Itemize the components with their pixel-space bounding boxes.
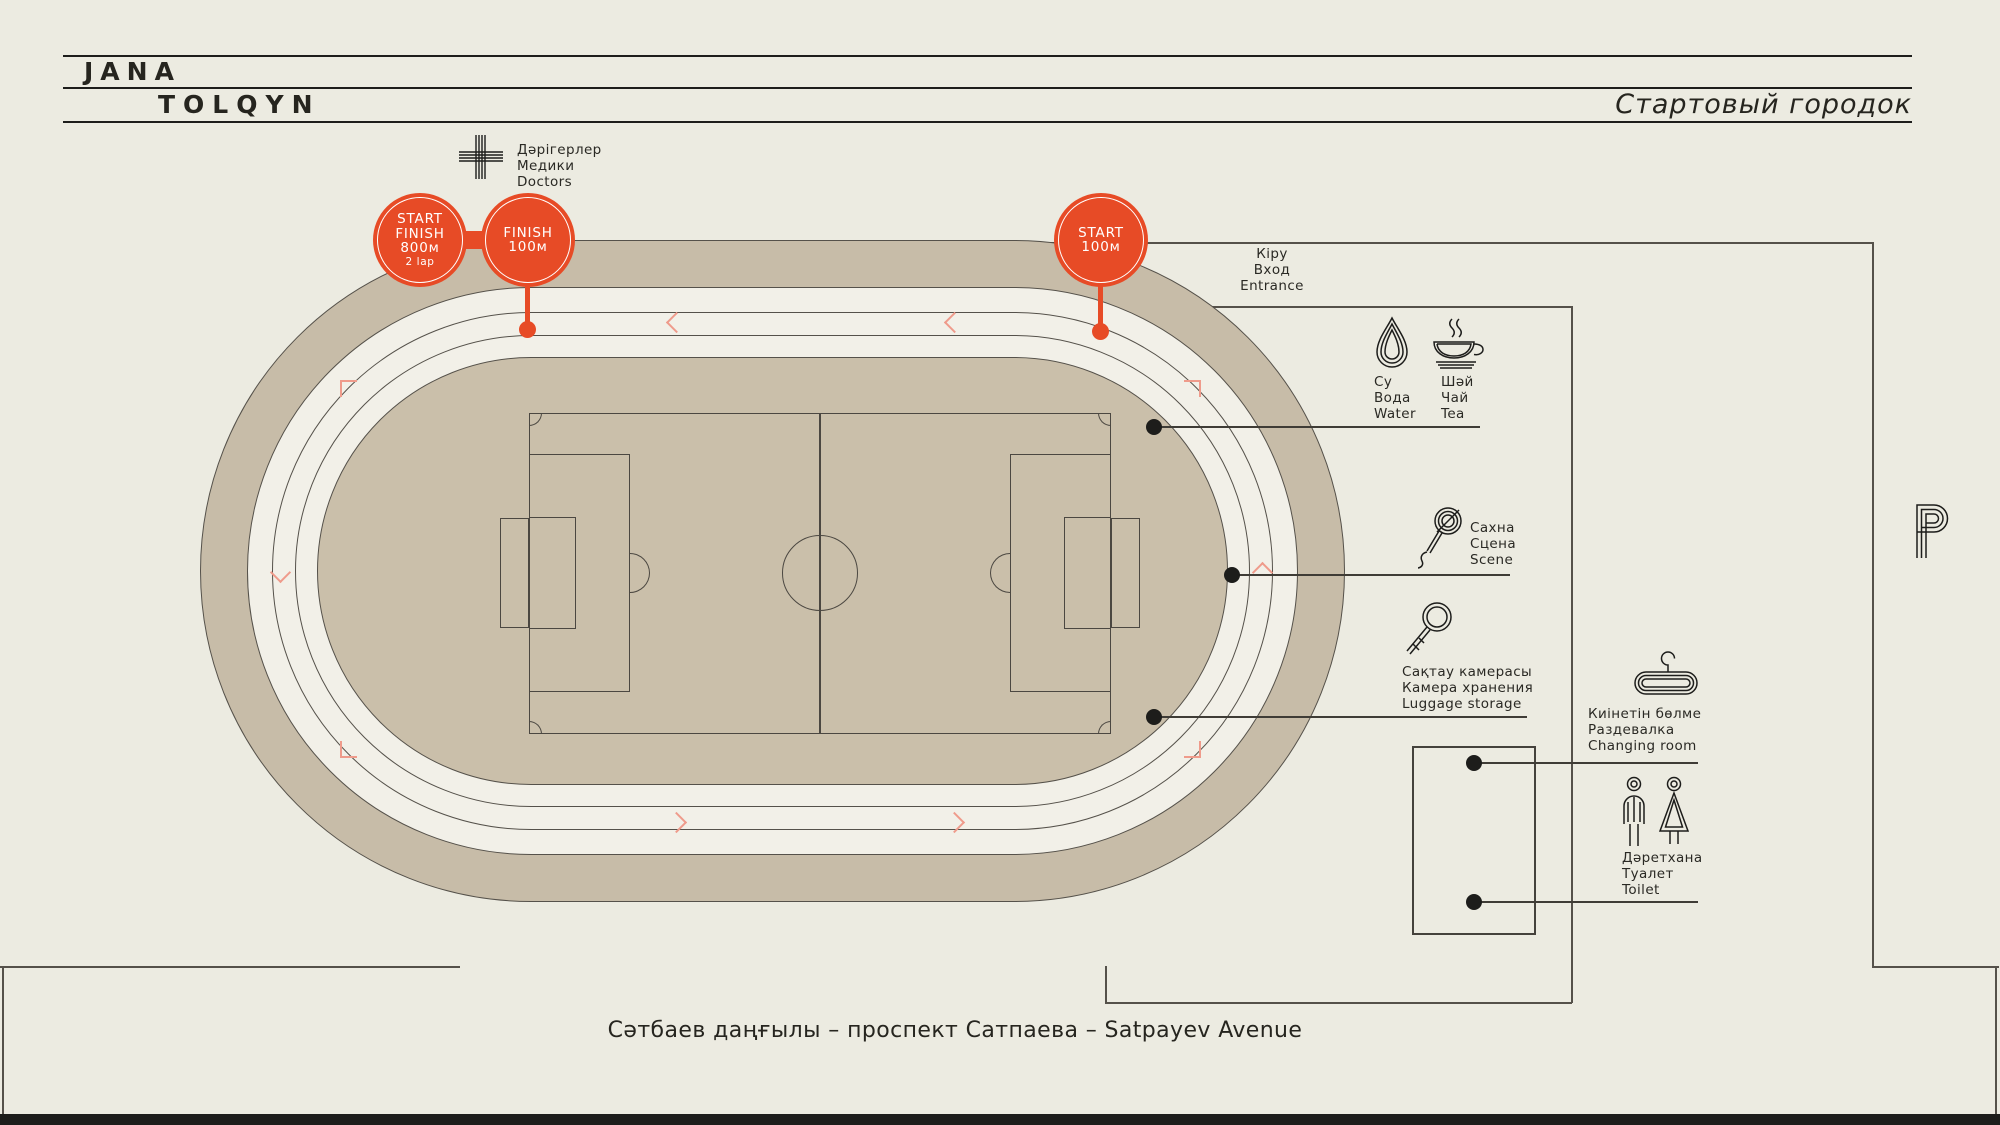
changing-point <box>1466 755 1482 771</box>
scene-label: Сахна Сцена Scene <box>1470 520 1516 568</box>
marker-start-100: START 100м <box>1054 193 1148 287</box>
lane-corner-mark-lb <box>340 741 357 758</box>
inner-box-left-edge <box>1105 966 1107 1003</box>
water-tea-leader-line <box>1154 426 1480 428</box>
tea-label: Шәй Чай Tea <box>1441 374 1474 422</box>
avenue-edge-right <box>1995 966 1997 1116</box>
luggage-point <box>1146 709 1162 725</box>
finish-100-stem <box>525 284 530 326</box>
field-center-circle <box>782 535 858 611</box>
water-tea-point <box>1146 419 1162 435</box>
header-rule-1 <box>63 55 1912 57</box>
entrance-label: Кіру Вход Entrance <box>1197 246 1347 294</box>
lane-corner-mark-lt <box>340 380 357 397</box>
goal-left <box>500 518 529 628</box>
toilet-point <box>1466 894 1482 910</box>
man-woman-icon <box>1618 776 1692 852</box>
scene-point <box>1224 567 1240 583</box>
marker-inner-ring <box>485 197 571 283</box>
changing-leader-line <box>1474 762 1698 764</box>
luggage-label: Сақтау камерасы Камера хранения Luggage … <box>1402 664 1533 712</box>
logo-jana: JANA <box>84 57 181 86</box>
outer-box-right-edge <box>1872 242 1874 968</box>
doctors-label: Дәрігерлер Медики Doctors <box>517 142 602 190</box>
medical-cross-icon <box>456 132 506 182</box>
luggage-leader-line <box>1154 716 1527 718</box>
entrance-corridor-top-line <box>1050 242 1873 244</box>
start-100-dot <box>1092 323 1109 340</box>
clothes-hanger-icon <box>1632 648 1700 698</box>
toilet-leader-line <box>1474 901 1698 903</box>
avenue-line-left <box>0 966 460 968</box>
inner-box-bottom-line <box>1105 1002 1572 1004</box>
inner-box-right-edge <box>1571 306 1573 1003</box>
bottom-bar <box>0 1114 2000 1125</box>
marker-inner-ring <box>1058 197 1144 283</box>
tea-cup-icon <box>1428 316 1486 372</box>
avenue-line-right <box>1873 966 1999 968</box>
finish-100-dot <box>519 321 536 338</box>
goal-area-right <box>1064 517 1111 629</box>
marker-finish-100: FINISH 100м <box>481 193 575 287</box>
avenue-edge-left <box>2 966 4 1116</box>
goal-right <box>1111 518 1140 628</box>
logo-tolqyn: TOLQYN <box>158 90 321 119</box>
water-label: Су Вода Water <box>1374 374 1416 422</box>
key-icon <box>1400 598 1456 660</box>
start-100-stem <box>1098 284 1103 328</box>
parking-p-icon <box>1912 502 1952 560</box>
header-rule-3 <box>63 121 1912 123</box>
marker-start-finish-800: START FINISH 800м 2 lap <box>373 193 467 287</box>
lane-corner-mark-rb <box>1184 741 1201 758</box>
page-title: Стартовый городок <box>1450 89 1912 120</box>
start-town-map: START FINISH 800м 2 lap FINISH 100м STAR… <box>0 0 2000 1125</box>
microphone-icon <box>1418 504 1464 570</box>
marker-inner-ring <box>377 197 463 283</box>
goal-area-left <box>529 517 576 629</box>
water-drop-icon <box>1374 316 1410 372</box>
scene-leader-line <box>1232 574 1510 576</box>
lane-corner-mark-rt <box>1184 380 1201 397</box>
toilet-label: Дәретхана Туалет Toilet <box>1622 850 1703 898</box>
avenue-label: Сәтбаев даңғылы – проспект Сатпаева – Sa… <box>455 1018 1455 1043</box>
changing-room-label: Киінетін бөлме Раздевалка Changing room <box>1588 706 1701 754</box>
